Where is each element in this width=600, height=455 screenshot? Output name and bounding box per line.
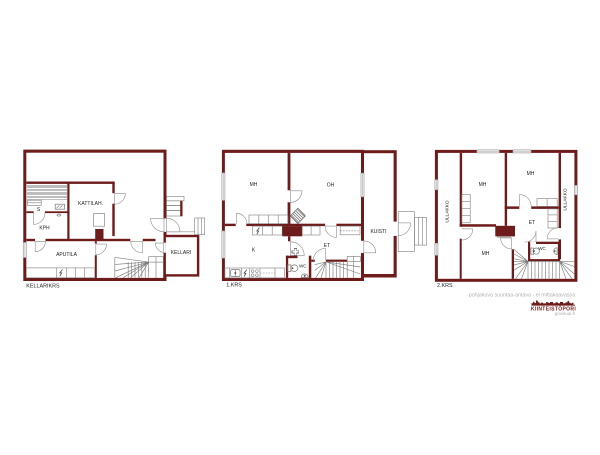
svg-text:MH: MH	[479, 182, 487, 188]
svg-text:WC: WC	[299, 264, 307, 269]
svg-text:KATTILAH.: KATTILAH.	[78, 201, 103, 207]
svg-text:2.KRS: 2.KRS	[437, 283, 453, 289]
svg-text:APUTILA: APUTILA	[56, 252, 78, 258]
svg-text:KELLARIKRS: KELLARIKRS	[26, 284, 60, 290]
svg-text:MH: MH	[482, 251, 490, 257]
svg-text:KPH: KPH	[39, 225, 50, 231]
svg-text:ULLAKKO: ULLAKKO	[563, 188, 569, 210]
svg-text:ET: ET	[529, 220, 535, 226]
svg-text:govisual.fi: govisual.fi	[555, 311, 575, 316]
svg-text:MH: MH	[527, 171, 535, 177]
svg-text:KUISTI: KUISTI	[370, 229, 386, 235]
svg-text:OH: OH	[327, 183, 335, 189]
svg-text:KELLARI: KELLARI	[171, 250, 192, 256]
svg-text:MH: MH	[250, 182, 258, 188]
svg-text:ULLAKKO: ULLAKKO	[445, 200, 451, 222]
svg-text:pohjakuva suuntaa-antava - ei: pohjakuva suuntaa-antava - ei mittakaava…	[469, 293, 575, 299]
svg-text:ET: ET	[324, 243, 330, 249]
svg-text:1.KRS: 1.KRS	[226, 283, 242, 289]
